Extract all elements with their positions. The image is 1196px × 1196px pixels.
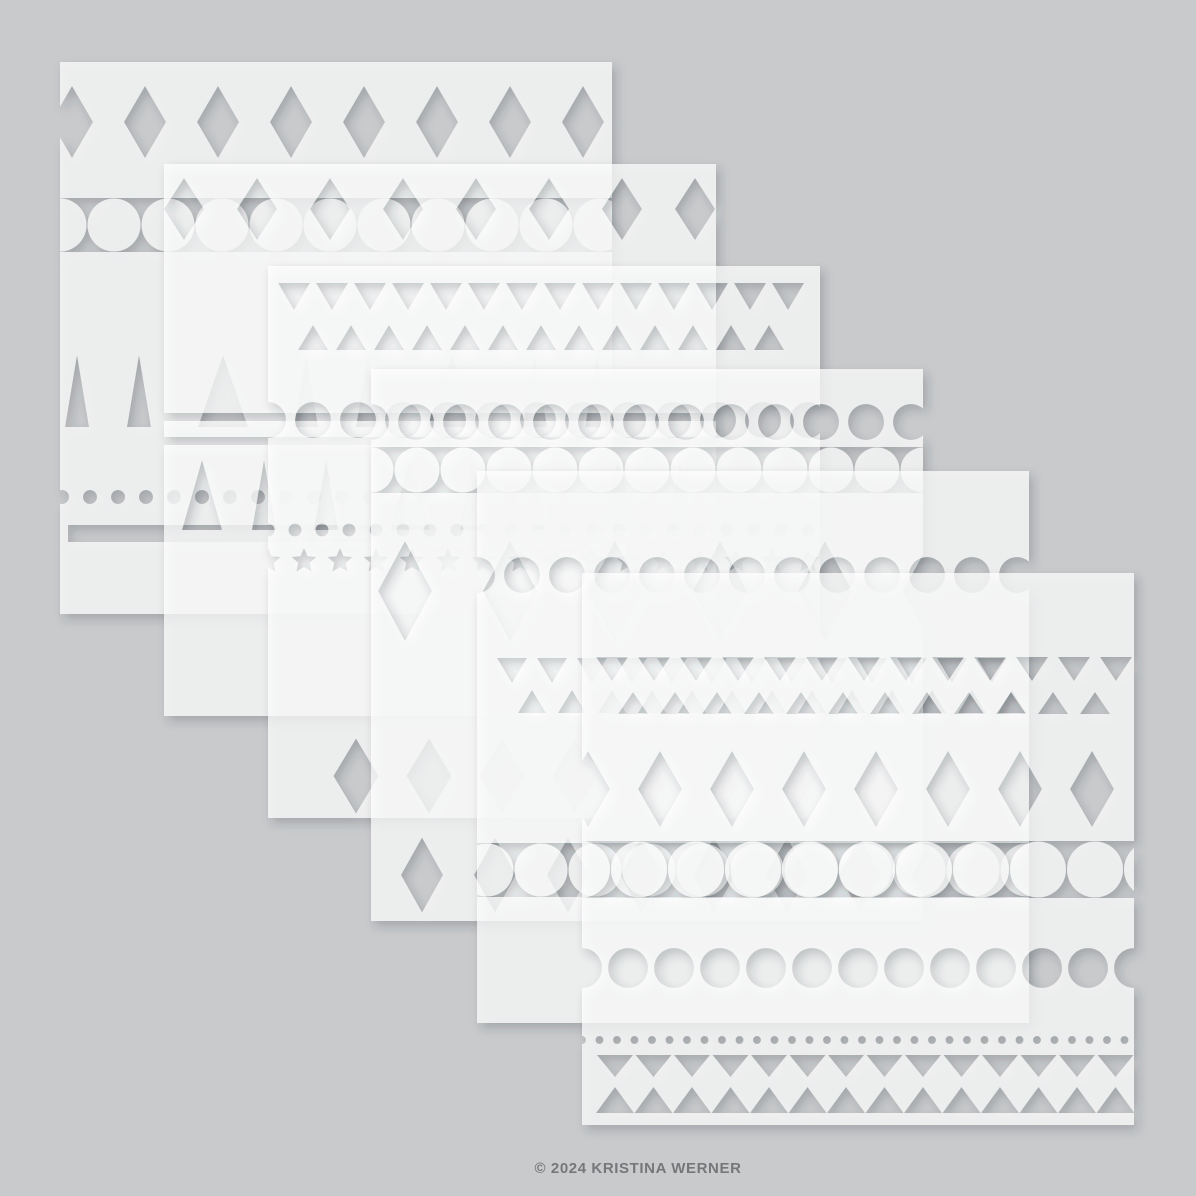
stencil-sheet-6 (554, 573, 1180, 1125)
product-image: © 2024 KRISTINA WERNER (0, 0, 1196, 1196)
copyright-text: © 2024 KRISTINA WERNER (40, 1160, 1196, 1177)
stencil-stack (0, 0, 1196, 1196)
